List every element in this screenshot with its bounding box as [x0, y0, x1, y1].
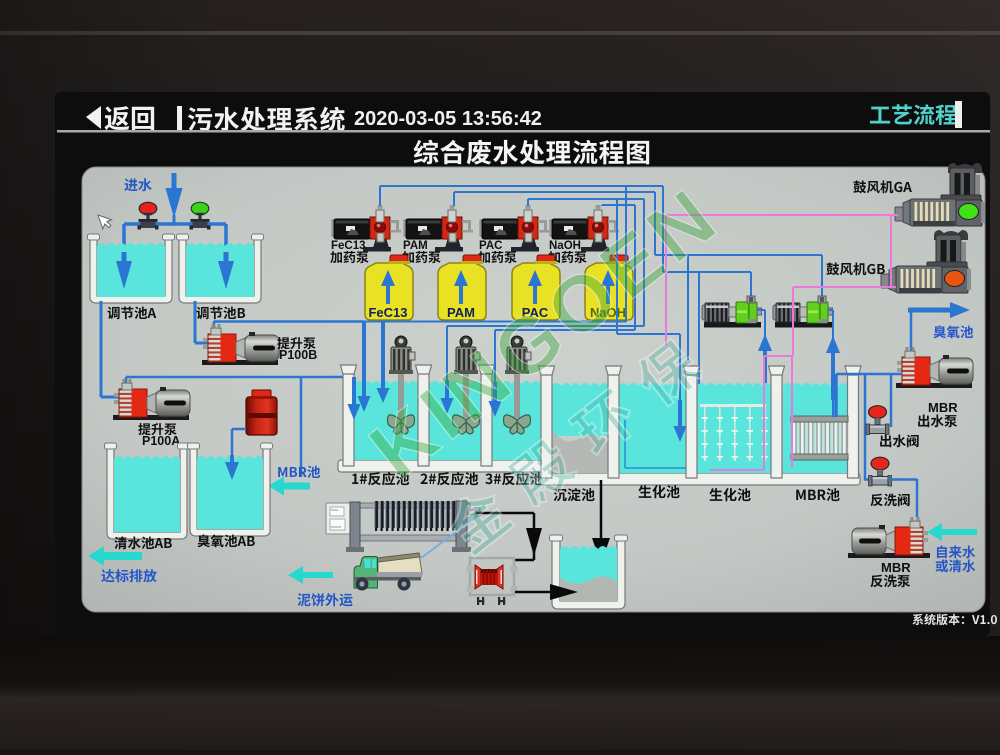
svg-text:MBR: MBR [928, 400, 958, 415]
svg-text:FeC13: FeC13 [368, 305, 407, 320]
svg-text:P100B: P100B [279, 348, 317, 362]
svg-text:PAM: PAM [403, 240, 428, 252]
svg-text:2020-03-05 13:56:42: 2020-03-05 13:56:42 [354, 108, 542, 130]
svg-text:PAC: PAC [479, 240, 502, 252]
svg-text:MBR: MBR [881, 560, 911, 575]
svg-text:PAM: PAM [447, 305, 475, 320]
svg-text:P100A: P100A [142, 434, 180, 448]
svg-text:FeC13: FeC13 [331, 240, 366, 252]
